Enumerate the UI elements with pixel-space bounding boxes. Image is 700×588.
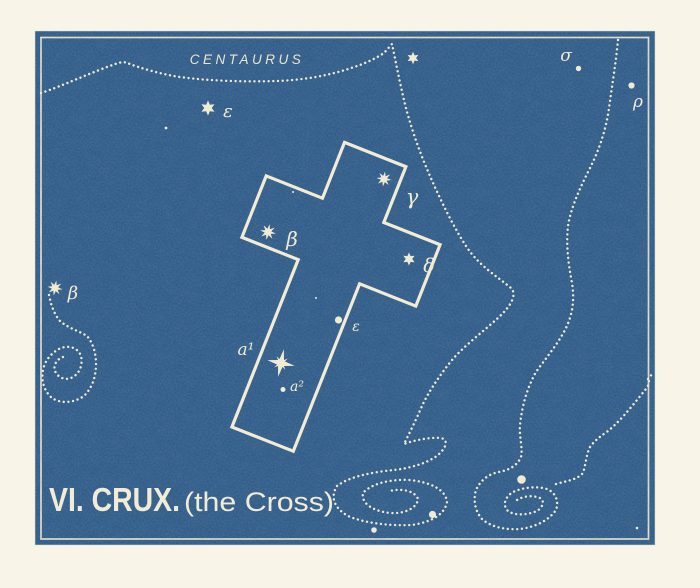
label-delta-crucis: δ <box>423 255 434 277</box>
faint-speck-1 <box>165 127 168 130</box>
label-epsilon-centauri: ε <box>223 101 233 122</box>
bottom-middle-star-icon <box>429 511 436 518</box>
label-beta-crucis: β <box>285 227 298 251</box>
faint-speck-2 <box>292 191 294 193</box>
star-chart-plate: CENTAURUS ε σ ρ γ β δ ε a¹ a² β VI. CRUX… <box>0 0 700 588</box>
bottom-left-star-icon <box>371 527 377 533</box>
sigma-star-icon <box>576 66 581 71</box>
label-gamma-crucis: γ <box>406 185 419 209</box>
knot-bright-star-icon <box>517 475 526 484</box>
epsilon-crucis-star-icon <box>335 316 342 323</box>
label-alpha2-crucis: a² <box>290 379 304 395</box>
label-rho: ρ <box>632 92 643 112</box>
label-alpha1-crucis: a¹ <box>238 340 255 360</box>
faint-speck-3 <box>315 297 317 299</box>
label-sigma: σ <box>560 46 572 66</box>
centaurus-label: CENTAURUS <box>190 52 305 67</box>
plate-title: VI. CRUX. <box>49 481 180 518</box>
label-epsilon-crucis: ε <box>352 319 360 335</box>
plate-speckle <box>35 31 655 545</box>
bottom-right-speck <box>636 527 639 530</box>
rho-star-icon <box>628 82 634 88</box>
plate-subtitle: (the Cross) <box>184 487 334 517</box>
alpha2-crucis-star-icon <box>281 387 286 392</box>
label-beta-outer: β <box>67 283 78 304</box>
